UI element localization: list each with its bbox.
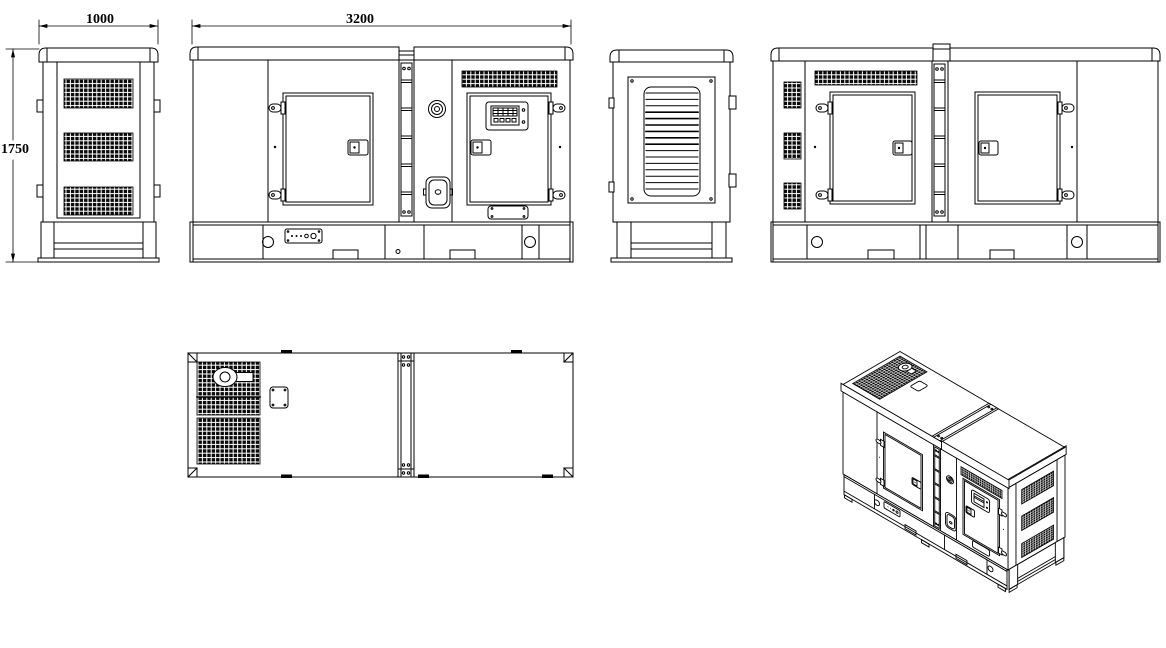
view-back-side [771, 44, 1160, 262]
lifting-hole [525, 237, 536, 248]
central-joint-strip [398, 353, 414, 477]
length-dim-label: 3200 [346, 12, 374, 27]
base-skid [38, 222, 159, 262]
forklift-slot [333, 250, 358, 259]
lifting-hole [812, 237, 823, 248]
central-joint-strip [399, 60, 414, 222]
width-dim-label: 1000 [86, 12, 114, 27]
side-vent-grille [784, 183, 801, 209]
left-door [816, 92, 915, 204]
central-joint-strip [932, 403, 999, 442]
hinge-icon [729, 174, 736, 187]
height-dim-label: 1750 [1, 142, 29, 157]
genset-technical-drawing-page: 1000 1750 3200 [0, 0, 1166, 648]
control-panel-display [486, 102, 528, 130]
air-inlet-grille-bottom [64, 187, 133, 215]
air-inlet-grille-mid [64, 133, 133, 161]
hinge-icon [37, 185, 43, 197]
iso-end-face [1007, 446, 1066, 594]
side-vent-grille [784, 133, 801, 159]
view-front-side [190, 47, 573, 262]
base-skid [611, 222, 732, 262]
left-door [269, 93, 373, 205]
air-inlet-grille-top [1022, 471, 1054, 504]
view-isometric [841, 352, 1066, 594]
hinge-icon [37, 100, 43, 112]
roof-exhaust-grille [197, 418, 260, 464]
hinge-icon [154, 100, 160, 112]
hinge-icon [828, 102, 832, 114]
dimension-width-1000: 1000 [39, 12, 158, 44]
roof-access-plate [910, 381, 928, 392]
view-front-end [37, 48, 160, 262]
connector-panel [285, 229, 322, 243]
air-inlet-grille-top [64, 79, 133, 108]
lifting-hole [1072, 237, 1083, 248]
air-outlet-grille [815, 71, 917, 85]
air-inlet-grille-mid [1022, 498, 1054, 531]
side-vent-grille [784, 82, 801, 108]
hinge-icon [1058, 189, 1062, 201]
hinge-icon [609, 182, 614, 192]
roof-access-plate [270, 387, 288, 408]
view-top-plan [188, 350, 573, 478]
right-door [467, 93, 565, 205]
hinge-icon [828, 189, 832, 201]
emergency-stop-button [429, 101, 446, 118]
hinge-icon [549, 102, 553, 114]
hinge-icon [1058, 102, 1062, 114]
vent-plate [488, 206, 528, 219]
hinge-icon [154, 185, 160, 197]
view-rear-end [609, 50, 736, 262]
forklift-slot [868, 250, 894, 259]
technical-drawing-canvas: 1000 1750 3200 [0, 0, 1166, 648]
hinge-icon [729, 96, 736, 109]
hinge-icon [281, 189, 285, 201]
hinge-icon [549, 189, 553, 201]
lifting-hole [263, 237, 274, 248]
base-skid [771, 222, 1160, 262]
base-skid [190, 222, 573, 262]
forklift-slot [990, 250, 1014, 259]
dimension-height-1750: 1750 [1, 49, 39, 262]
hinge-icon [281, 102, 285, 114]
dimension-length-3200: 3200 [192, 12, 571, 44]
forklift-slot [450, 250, 475, 259]
fuel-filler-cap [424, 177, 453, 208]
louver-grille [644, 87, 700, 196]
right-door [975, 92, 1074, 204]
central-joint-strip [932, 61, 948, 222]
roof-exhaust-grille [853, 356, 927, 399]
hinge-icon [609, 98, 614, 108]
air-outlet-grille [462, 71, 557, 87]
